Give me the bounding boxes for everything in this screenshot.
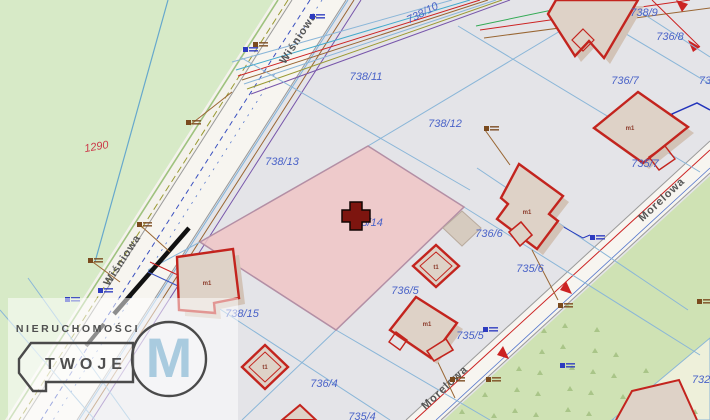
map-viewport[interactable]: 738/10738/9736/8736/773735/7738/11738/12… (0, 0, 710, 420)
watermark-letter-m: M (146, 326, 193, 389)
parcel-number-label: 736/8 (656, 31, 684, 43)
parcel-number-label: 735/6 (516, 263, 544, 275)
building-label: m1 (523, 210, 532, 216)
parcel-number-label: 738/13 (265, 156, 300, 168)
building-label: m1 (203, 281, 212, 287)
building-label: t1 (433, 265, 439, 271)
parcel-number-label: 73 (699, 75, 710, 87)
parcel-number-label: 735/4 (348, 411, 376, 420)
parcel-number-label: 738/12 (428, 118, 462, 130)
watermark-logo: NIERUCHOMOŚCI TWOJE M (8, 298, 238, 420)
building-label: t1 (262, 365, 268, 371)
watermark-brand: TWOJE (45, 356, 127, 373)
parcel-number-label: 736/6 (475, 228, 503, 240)
parcel-number-label: 735/5 (456, 330, 484, 342)
parcel-number-label: 736/4 (310, 378, 338, 390)
building-label: m1 (423, 322, 432, 328)
cadastral-map-canvas[interactable]: 738/10738/9736/8736/773735/7738/11738/12… (0, 0, 710, 420)
parcel-number-label: 738/11 (350, 71, 383, 83)
parcel-number-label: 738/9 (630, 7, 658, 19)
parcel-number-label: 735/7 (631, 158, 659, 170)
building-label: m1 (626, 126, 635, 132)
watermark-company-name: NIERUCHOMOŚCI (16, 322, 140, 335)
parcel-number-label: 736/5 (391, 285, 419, 297)
parcel-number-label: 736/7 (611, 75, 639, 87)
parcel-number-label: 732 (692, 374, 710, 386)
